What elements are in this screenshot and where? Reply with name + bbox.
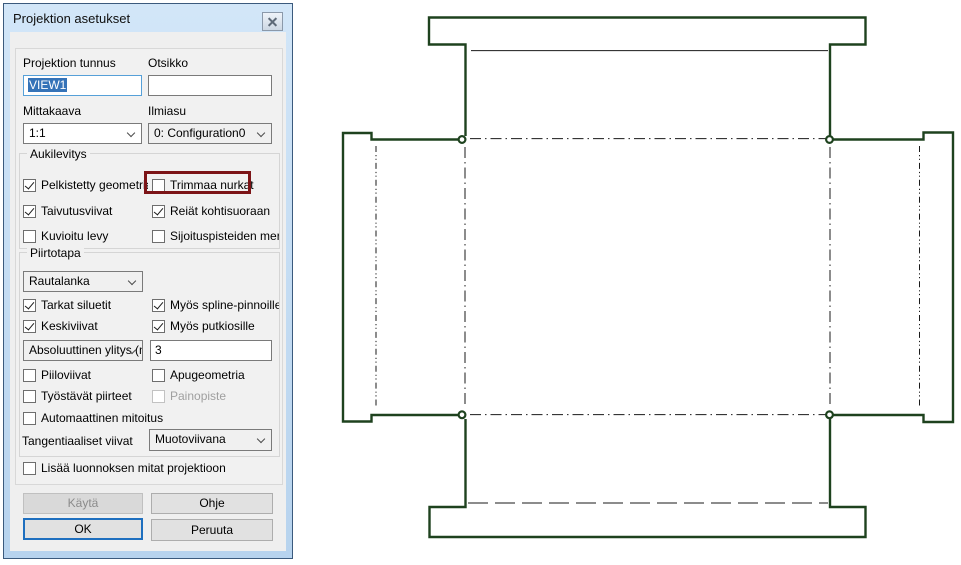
checkbox-label: Tarkat siluetit [41, 298, 111, 312]
chevron-down-icon [127, 129, 135, 137]
dialog-title: Projektion asetukset [13, 11, 130, 26]
checkbox-row: Myös spline-pinnoille [152, 298, 279, 312]
trimmaa-nurkat-highlight-box [144, 171, 251, 194]
checkbox-row: Pelkistetty geometria [23, 178, 148, 192]
outline-top-flap [429, 18, 866, 137]
ilmiasu-combo[interactable]: 0: Configuration0 [148, 123, 272, 144]
tangentiaaliset-viivat-combo[interactable]: Muotoviivana [149, 429, 272, 451]
checkbox-row: Työstävät piirteet [23, 389, 148, 403]
checkbox-label: Piiloviivat [41, 368, 91, 382]
corner-notch-top-left [459, 136, 466, 143]
checkbox-keskiviivat[interactable] [23, 320, 36, 333]
ylitys-amount-input[interactable]: 3 [150, 340, 272, 361]
chevron-down-icon [257, 129, 265, 137]
checkbox-row: Automaattinen mitoitus [23, 411, 203, 425]
ilmiasu-label: Ilmiasu [148, 104, 186, 118]
piirtotapa-legend: Piirtotapa [27, 246, 84, 260]
checkbox-row: Painopiste [152, 389, 279, 403]
checkbox-label: Myös spline-pinnoille [170, 298, 279, 312]
checkbox-taivutusviivat[interactable] [23, 205, 36, 218]
checkbox-lisaa-luonnoksen-mitat[interactable] [23, 462, 36, 475]
checkbox-row: Myös putkiosille [152, 319, 279, 333]
piirtotapa-combo[interactable]: Rautalanka [23, 271, 143, 292]
checkbox-label: Työstävät piirteet [41, 389, 132, 403]
otsikko-label: Otsikko [148, 56, 188, 70]
checkbox-label: Sijoituspisteiden merkir [170, 229, 279, 243]
checkbox-label: Taivutusviivat [41, 204, 112, 218]
checkbox-label: Myös putkiosille [170, 319, 255, 333]
checkbox-row: Kuvioitu levy [23, 229, 148, 243]
flat-pattern-view [330, 0, 961, 565]
ylitys-combo[interactable]: Absoluuttinen ylitys (n [23, 340, 143, 361]
checkbox-label: Automaattinen mitoitus [41, 411, 163, 425]
checkbox-row: Reiät kohtisuoraan [152, 204, 279, 218]
checkbox-row: Taivutusviivat [23, 204, 148, 218]
outline-right-flap [834, 133, 954, 423]
checkbox-sijoituspisteiden-merkinta[interactable] [152, 230, 165, 243]
close-icon[interactable] [262, 12, 283, 31]
mittakaava-combo[interactable]: 1:1 [23, 123, 142, 144]
projektion-tunnus-input[interactable]: VIEW1 [23, 75, 142, 96]
aukilevitys-legend: Aukilevitys [27, 147, 90, 161]
checkbox-label: Painopiste [170, 389, 226, 403]
checkbox-label: Reiät kohtisuoraan [170, 204, 270, 218]
projection-settings-dialog: Projektion asetukset Projektion tunnus O… [3, 3, 293, 559]
peruuta-button[interactable]: Peruuta [151, 519, 273, 541]
projektion-tunnus-label: Projektion tunnus [23, 56, 116, 70]
checkbox-tyostavat-piirteet[interactable] [23, 390, 36, 403]
checkbox-row: Keskiviivat [23, 319, 148, 333]
ok-button[interactable]: OK [23, 518, 143, 540]
checkbox-row: Lisää luonnoksen mitat projektioon [23, 461, 263, 475]
corner-notch-bottom-left [459, 411, 466, 418]
outline-bottom-flap [430, 419, 866, 537]
checkbox-piiloviivat[interactable] [23, 369, 36, 382]
checkbox-label: Kuvioitu levy [41, 229, 108, 243]
checkbox-myos-putkiosille[interactable] [152, 320, 165, 333]
checkbox-reiat-kohtisuoraan[interactable] [152, 205, 165, 218]
checkbox-row: Sijoituspisteiden merkir [152, 229, 279, 243]
outline-left-flap [343, 133, 462, 422]
kayta-button: Käytä [23, 493, 143, 514]
checkbox-tarkat-siluetit[interactable] [23, 299, 36, 312]
mittakaava-label: Mittakaava [23, 104, 81, 118]
checkbox-myos-spline-pinnoille[interactable] [152, 299, 165, 312]
chevron-down-icon [257, 435, 265, 443]
checkbox-automaattinen-mitoitus[interactable] [23, 412, 36, 425]
tangentiaaliset-viivat-label: Tangentiaaliset viivat [22, 434, 133, 448]
checkbox-pelkistetty-geometria[interactable] [23, 179, 36, 192]
checkbox-row: Apugeometria [152, 368, 279, 382]
checkbox-label: Lisää luonnoksen mitat projektioon [41, 461, 226, 475]
checkbox-painopiste [152, 390, 165, 403]
screen: Projektion asetukset Projektion tunnus O… [0, 0, 961, 565]
otsikko-input[interactable] [148, 75, 272, 96]
chevron-down-icon [128, 277, 136, 285]
corner-notch-bottom-right [826, 411, 833, 418]
checkbox-label: Keskiviivat [41, 319, 98, 333]
ohje-button[interactable]: Ohje [151, 493, 273, 514]
checkbox-row: Tarkat siluetit [23, 298, 148, 312]
checkbox-kuvioitu-levy[interactable] [23, 230, 36, 243]
corner-notch-top-right [826, 136, 833, 143]
checkbox-row: Piiloviivat [23, 368, 148, 382]
checkbox-label: Apugeometria [170, 368, 245, 382]
titlebar[interactable]: Projektion asetukset [4, 4, 292, 32]
selected-text: VIEW1 [28, 78, 67, 92]
checkbox-apugeometria[interactable] [152, 369, 165, 382]
checkbox-label: Pelkistetty geometria [41, 178, 148, 192]
